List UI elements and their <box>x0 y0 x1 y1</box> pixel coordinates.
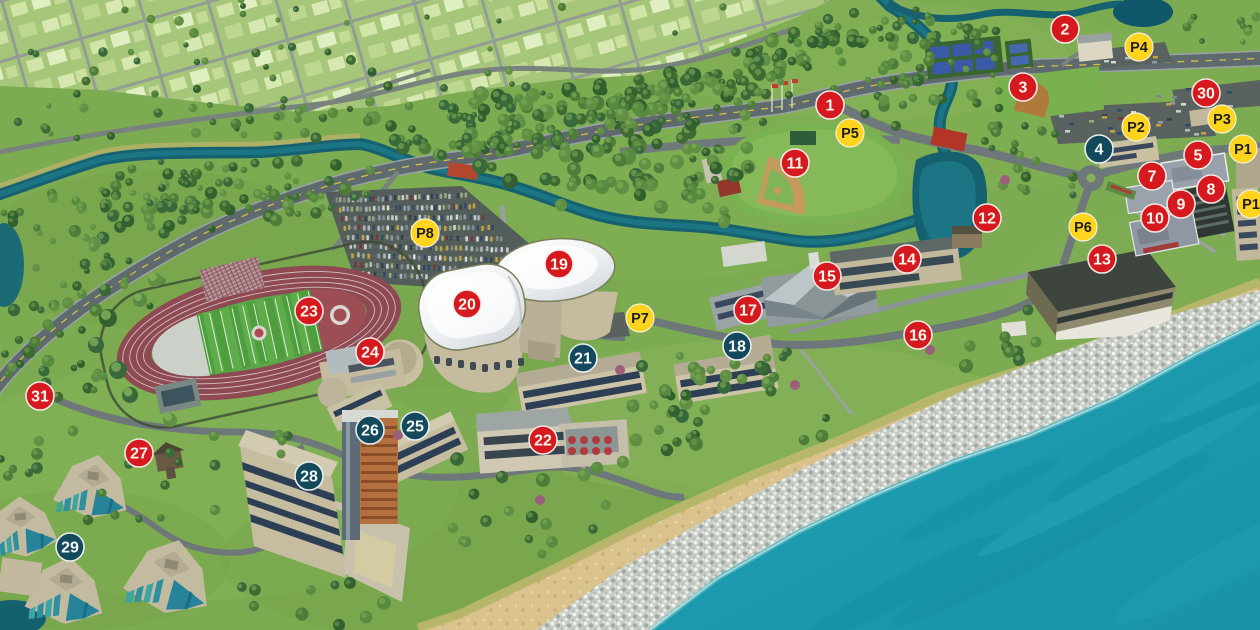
svg-text:3: 3 <box>1019 80 1028 97</box>
svg-text:12: 12 <box>978 211 996 228</box>
svg-text:13: 13 <box>1093 252 1111 269</box>
svg-text:P5: P5 <box>841 126 859 142</box>
svg-text:P8: P8 <box>416 226 434 242</box>
svg-text:24: 24 <box>361 345 379 362</box>
svg-text:20: 20 <box>458 297 476 314</box>
svg-text:8: 8 <box>1207 182 1216 199</box>
svg-text:19: 19 <box>550 257 568 274</box>
svg-text:30: 30 <box>1197 86 1215 103</box>
svg-text:29: 29 <box>61 540 79 557</box>
svg-text:2: 2 <box>1061 22 1070 39</box>
svg-text:P1: P1 <box>1242 197 1260 213</box>
svg-text:21: 21 <box>574 351 592 368</box>
svg-text:17: 17 <box>739 303 757 320</box>
svg-text:15: 15 <box>818 269 836 286</box>
svg-text:11: 11 <box>787 156 804 173</box>
svg-text:4: 4 <box>1095 142 1104 159</box>
svg-text:1: 1 <box>826 98 835 115</box>
svg-text:23: 23 <box>300 304 318 321</box>
svg-text:5: 5 <box>1194 148 1203 165</box>
svg-text:P4: P4 <box>1130 40 1148 56</box>
svg-text:9: 9 <box>1177 197 1186 214</box>
svg-text:26: 26 <box>361 423 379 440</box>
svg-text:P2: P2 <box>1127 120 1145 136</box>
svg-text:P6: P6 <box>1074 220 1092 236</box>
svg-text:14: 14 <box>898 252 916 269</box>
svg-text:P1: P1 <box>1234 142 1252 158</box>
svg-text:22: 22 <box>534 433 552 450</box>
svg-text:16: 16 <box>909 328 927 345</box>
svg-text:7: 7 <box>1148 169 1157 186</box>
svg-text:18: 18 <box>728 339 746 356</box>
svg-text:28: 28 <box>300 469 318 486</box>
svg-text:31: 31 <box>31 389 49 406</box>
svg-text:25: 25 <box>406 419 424 436</box>
svg-text:P7: P7 <box>631 311 649 327</box>
svg-text:10: 10 <box>1146 211 1164 228</box>
svg-text:27: 27 <box>130 446 148 463</box>
svg-text:P3: P3 <box>1213 112 1231 128</box>
